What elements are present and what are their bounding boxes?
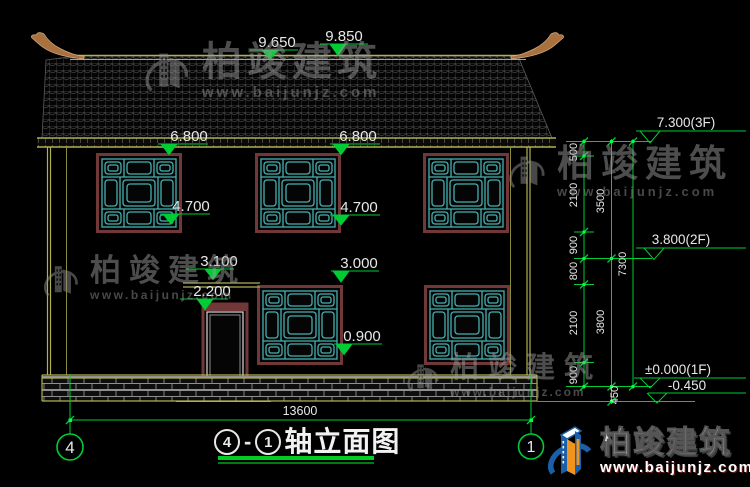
dim-3000: 3.000	[340, 255, 378, 272]
dim-4700-left: 4.700	[172, 198, 210, 215]
dim-0900: 0.900	[343, 328, 381, 345]
dim-ridge: 9.850	[325, 28, 363, 45]
brand-logo-block: 柏竣建筑 www.baijunjz.com	[543, 419, 750, 483]
chain-label: 800	[568, 262, 580, 280]
dim-13600: 13600	[283, 404, 318, 418]
dim-6800-left: 6.800	[170, 128, 208, 145]
chain-label: 3500	[595, 189, 607, 213]
window-1f-middle	[259, 287, 342, 364]
chain-label: 7300	[617, 252, 629, 276]
brand-company: 柏竣建筑	[600, 427, 750, 458]
title-underline	[218, 456, 374, 460]
eave-curl-right	[511, 33, 564, 59]
window-2f-middle	[257, 155, 340, 232]
dim-4700-right: 4.700	[340, 199, 378, 216]
dim-eave: 9.650	[258, 34, 296, 51]
chain-label: 2100	[568, 311, 580, 335]
fascia-band	[37, 138, 556, 147]
wall-right-edge	[527, 147, 530, 375]
grid-bubble-1-label: 1	[527, 439, 536, 456]
plinth	[42, 375, 537, 401]
level-2f: 3.800(2F)	[652, 232, 711, 247]
title-axis-right: 1	[255, 429, 281, 455]
grid-bubble-4-label: 4	[65, 438, 74, 457]
window-2f-right	[425, 155, 508, 232]
brand-logo-icon	[543, 419, 595, 483]
drawing-title: 4 - 1 轴立面图	[214, 428, 400, 456]
dim-2200: 2.200	[193, 283, 231, 300]
elevation-drawing: 9.650 9.850 6.800 6.800 4.700 4.700 3.10…	[0, 0, 750, 487]
title-axis-left: 4	[214, 429, 240, 455]
brand-url: www.baijunjz.com	[600, 460, 750, 475]
chain-label: 450	[609, 386, 621, 404]
chain-label: 900	[568, 236, 580, 254]
chain-label: 3800	[595, 310, 607, 334]
cad-elevation-screenshot: 9.650 9.850 6.800 6.800 4.700 4.700 3.10…	[0, 0, 750, 487]
level-ground: -0.450	[668, 378, 706, 393]
chain-label: 500	[568, 143, 580, 161]
window-1f-right	[426, 287, 509, 364]
title-underline-2	[218, 462, 374, 464]
title-text: 轴立面图	[284, 428, 400, 456]
level-3f: 7.300(3F)	[657, 115, 716, 130]
dim-6800-right: 6.800	[339, 128, 377, 145]
title-separator: -	[244, 429, 251, 455]
level-1f: ±0.000(1F)	[645, 362, 711, 377]
eave-curl-left	[31, 33, 84, 59]
chain-label: 2100	[568, 183, 580, 207]
dim-3100: 3.100	[200, 253, 238, 270]
wall-left-edge	[48, 147, 51, 375]
roof-tiles	[42, 56, 552, 138]
chain-label: 900	[568, 366, 580, 384]
